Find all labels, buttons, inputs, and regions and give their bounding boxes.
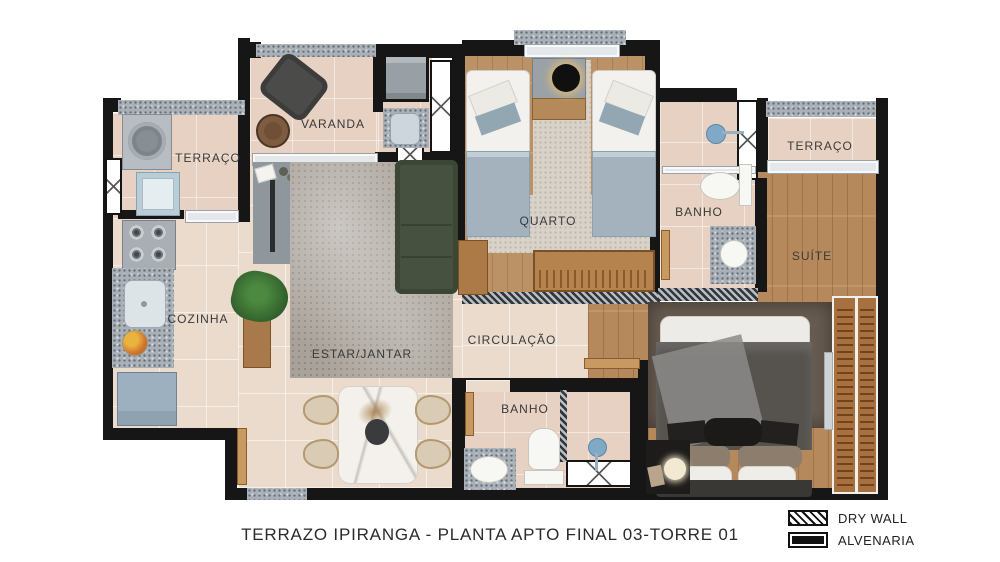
toilet-social-tank <box>524 470 564 485</box>
quarto-wardrobe <box>533 250 655 292</box>
label-banho-social: BANHO <box>501 402 549 416</box>
laundry-tub-basin <box>142 178 174 210</box>
sofa-cushion-line <box>401 256 452 258</box>
kitchen-sink-drain <box>141 301 147 307</box>
shaft-banho-social <box>566 460 632 487</box>
parapet-terraco-suite <box>766 101 876 117</box>
tecnica-sink <box>390 113 420 145</box>
fruit-bowl <box>122 330 148 356</box>
quarto-nightstand-shelf <box>532 98 586 120</box>
wall-banho-suite-right <box>755 178 767 292</box>
label-terraco-suite: TERRAÇO <box>787 139 853 153</box>
suite-lamp <box>664 458 686 480</box>
door-entrada <box>237 428 247 485</box>
bed-pillow-tan <box>738 446 802 468</box>
legend-alvenaria-label: ALVENARIA <box>838 533 915 548</box>
water-heater <box>383 54 429 102</box>
wall-banho-suite-top <box>660 88 737 102</box>
sliding-door-terraco-suite <box>767 160 879 174</box>
dining-chair <box>303 439 339 469</box>
kitchen-sink <box>124 280 166 328</box>
stove-burner <box>151 225 166 240</box>
bed-single-left <box>466 70 530 236</box>
dining-chair <box>303 395 339 425</box>
wall-step-horizontal <box>103 428 237 440</box>
door-banho-social <box>465 392 474 436</box>
floor-plan: TERRAÇO VARANDA QUARTO BANHO TERRAÇO SUÍ… <box>0 0 1000 562</box>
shower-head-suite <box>706 124 726 144</box>
wall-terraco-varanda <box>238 38 250 222</box>
quarto-lamp <box>552 64 580 92</box>
suite-bench <box>824 352 833 430</box>
label-circulacao: CIRCULAÇÃO <box>468 333 557 347</box>
legend: DRY WALL ALVENARIA <box>788 507 988 551</box>
drywall-swatch-icon <box>788 510 828 526</box>
label-varanda: VARANDA <box>301 117 365 131</box>
shaft-area-tecnica <box>430 60 452 153</box>
bed-single-right <box>592 70 656 236</box>
label-suite: SUÍTE <box>792 249 832 263</box>
toilet-suite-tank <box>739 164 752 206</box>
laundry-tub <box>136 172 180 216</box>
label-estar-jantar: ESTAR/JANTAR <box>312 347 412 361</box>
legend-drywall-row: DRY WALL <box>788 507 988 529</box>
suite-wardrobe <box>832 296 878 494</box>
sofa <box>395 160 458 294</box>
toilet-social-bowl <box>528 428 560 470</box>
wall-step-vertical <box>225 428 237 500</box>
tv-sideboard <box>253 162 295 264</box>
label-cozinha: COZINHA <box>168 312 229 326</box>
shaft-terraco-servico <box>105 158 122 215</box>
legend-alvenaria-row: ALVENARIA <box>788 529 988 551</box>
legend-drywall-label: DRY WALL <box>838 511 908 526</box>
door-suite <box>584 358 640 369</box>
parapet-terraco-servico <box>118 100 245 115</box>
shower-screen-social <box>560 390 567 462</box>
window-quarto <box>524 44 620 58</box>
washing-machine <box>122 114 172 170</box>
suite-nightstand <box>646 440 690 494</box>
sofa-cushion-line <box>401 224 452 226</box>
parapet-varanda <box>256 44 376 57</box>
washer-drum <box>128 122 166 160</box>
sliding-door-terraco-servico <box>185 210 239 223</box>
doorway-banho-social <box>466 380 510 392</box>
ledge-quarto-top <box>514 30 626 45</box>
table-vase <box>365 419 389 445</box>
drywall-quarto-bottom <box>462 292 660 304</box>
fridge <box>117 372 177 426</box>
dining-table <box>338 386 418 484</box>
side-table <box>256 114 290 148</box>
drywall-banho-suite-bottom <box>658 288 758 301</box>
bed-cushion-fur <box>704 418 762 446</box>
stove <box>122 220 176 270</box>
tv-panel <box>270 180 275 252</box>
wardrobe-hangers <box>860 304 874 486</box>
toilet-suite-bowl <box>700 172 740 200</box>
suite-decor-book <box>647 465 665 487</box>
quarto-dresser <box>458 240 488 295</box>
label-terraco-servico: TERRAÇO <box>175 151 241 165</box>
shower-arm-suite <box>722 131 744 134</box>
shower-arm-social <box>595 453 598 471</box>
sink-suite <box>720 240 748 268</box>
bed-blanket <box>592 151 656 237</box>
label-banho-suite: BANHO <box>675 205 723 219</box>
door-banho-suite <box>661 230 670 280</box>
stove-burner <box>129 225 144 240</box>
alvenaria-swatch-icon <box>788 532 828 548</box>
wardrobe-hangers <box>837 304 853 486</box>
stove-burner <box>129 247 144 262</box>
stove-burner <box>151 247 166 262</box>
wardrobe-hangers <box>539 270 649 288</box>
label-quarto: QUARTO <box>520 214 577 228</box>
plan-title: TERRAZO IPIRANGA - PLANTA APTO FINAL 03-… <box>160 525 820 545</box>
threshold-entry <box>247 488 307 500</box>
sink-social <box>470 456 508 483</box>
wardrobe-divider <box>855 298 858 492</box>
bed-cushion-dark <box>759 420 799 446</box>
